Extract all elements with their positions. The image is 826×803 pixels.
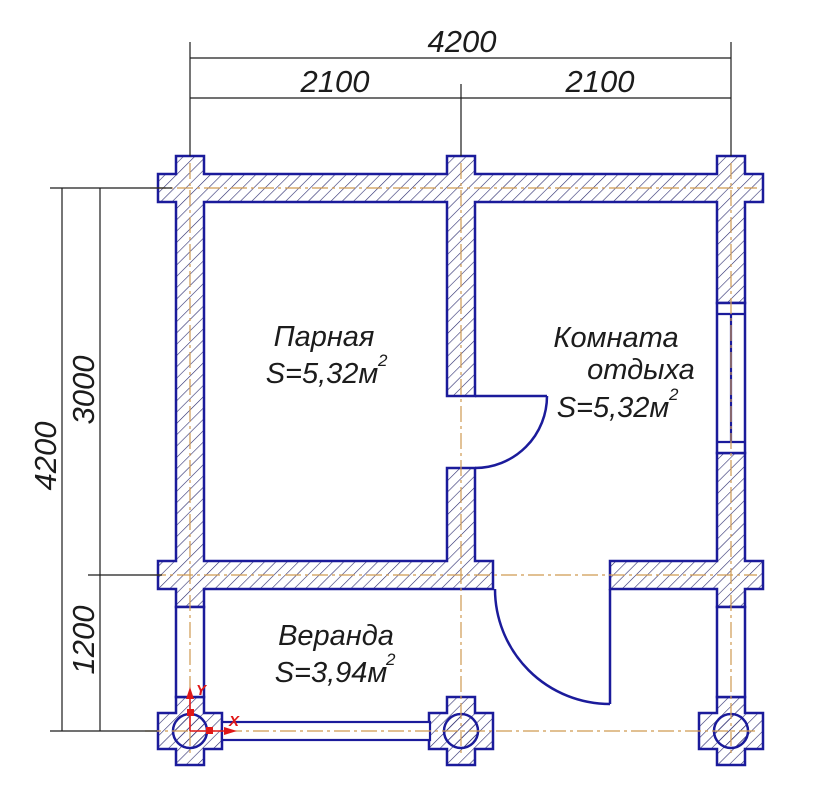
steam-room-area: S=5,32м xyxy=(266,358,379,390)
dim-top-seg1-label: 2100 xyxy=(300,64,370,99)
floor-plan-page: 4200 2100 2100 4200 3000 1200 Парная S=5… xyxy=(0,0,826,803)
dim-left-seg2-label: 1200 xyxy=(66,606,101,675)
dim-top-seg2-label: 2100 xyxy=(565,64,635,99)
wall-right-lower-structure xyxy=(610,453,763,607)
veranda-area: S=3,94м xyxy=(275,657,388,689)
room-label-veranda: Веранда S=3,94м 2 xyxy=(275,620,396,689)
rest-room-name-line1: Комната xyxy=(553,322,678,354)
door-entrance-swing-arc xyxy=(495,589,610,704)
doors xyxy=(475,396,610,704)
rest-room-name-line2: отдыха xyxy=(587,354,695,386)
veranda-name: Веранда xyxy=(278,620,394,652)
room-label-steam-room: Парная S=5,32м 2 xyxy=(266,321,388,390)
x-axis-node xyxy=(206,727,213,734)
dimension-left-labels: 4200 3000 1200 xyxy=(28,356,101,675)
dim-left-total-label: 4200 xyxy=(28,422,63,491)
dimension-top xyxy=(190,42,731,156)
steam-room-name: Парная xyxy=(274,321,375,353)
y-axis-node xyxy=(187,709,194,716)
y-axis-label: Y xyxy=(196,682,208,699)
dim-top-total-label: 4200 xyxy=(428,24,497,59)
floor-plan-drawing: 4200 2100 2100 4200 3000 1200 Парная S=5… xyxy=(0,0,826,803)
rest-room-area-sup: 2 xyxy=(668,385,679,404)
dim-left-seg1-label: 3000 xyxy=(66,356,101,425)
rest-room-area: S=5,32м xyxy=(557,392,670,424)
door-interior-swing-arc xyxy=(475,396,547,468)
x-axis-label: X xyxy=(228,713,240,730)
veranda-area-sup: 2 xyxy=(385,650,396,669)
steam-room-area-sup: 2 xyxy=(377,351,388,370)
room-label-rest-room: Комната отдыха S=5,32м 2 xyxy=(553,322,694,424)
dimension-top-labels: 4200 2100 2100 xyxy=(300,24,635,99)
